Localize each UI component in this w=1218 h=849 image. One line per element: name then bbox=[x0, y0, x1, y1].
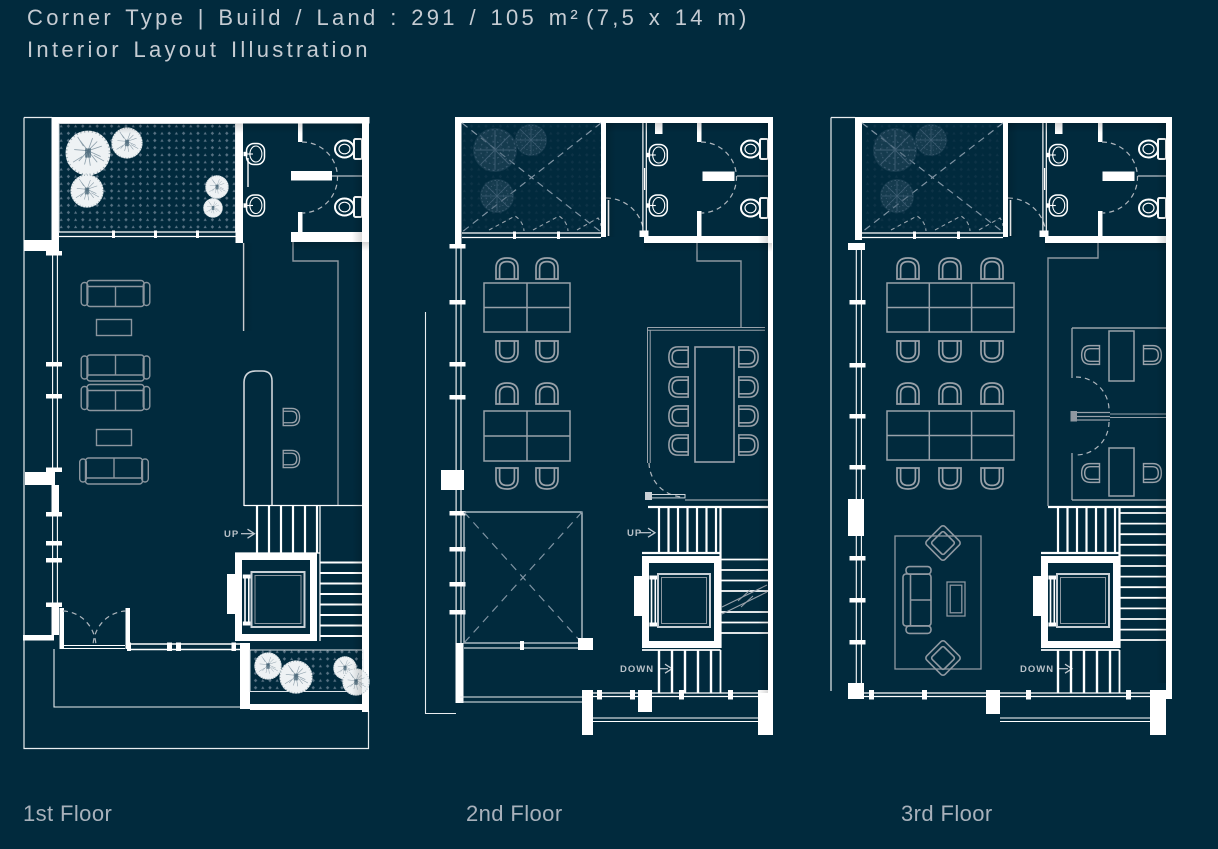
svg-text:UP: UP bbox=[627, 528, 642, 539]
svg-text:DOWN: DOWN bbox=[620, 664, 654, 675]
svg-text:UP: UP bbox=[224, 529, 239, 540]
svg-text:DOWN: DOWN bbox=[1020, 664, 1054, 675]
